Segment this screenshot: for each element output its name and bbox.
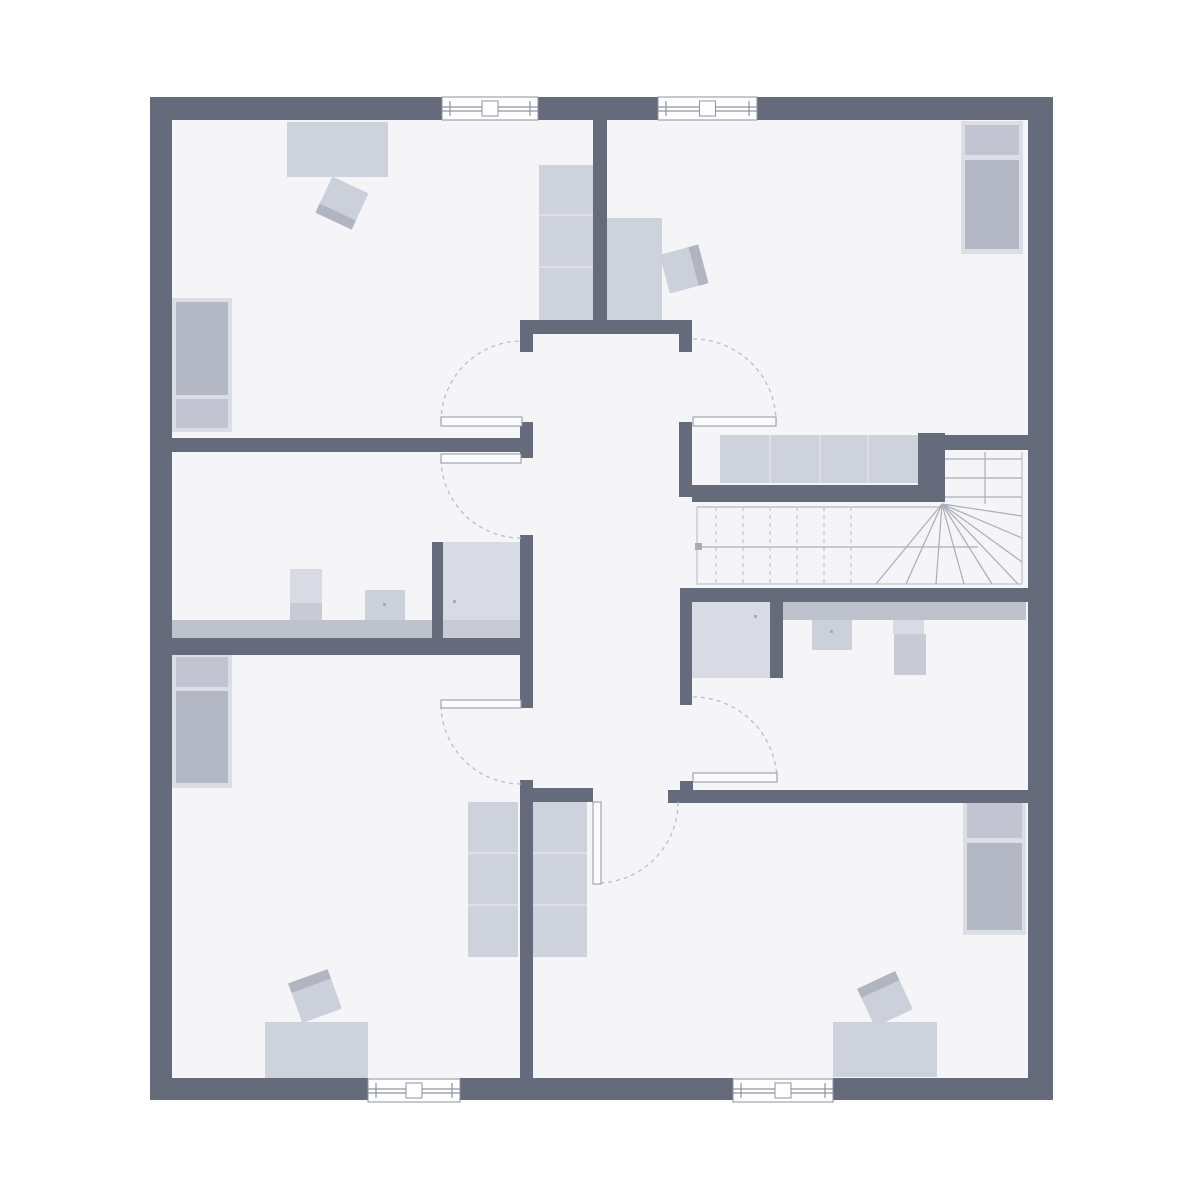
fixture-mark — [830, 630, 833, 633]
desk — [287, 122, 388, 177]
wall — [460, 1078, 733, 1100]
sink — [812, 620, 852, 650]
toilet-bowl — [290, 603, 322, 620]
bed-pillow — [176, 657, 228, 687]
wardrobe — [539, 165, 593, 320]
wall — [680, 588, 1028, 602]
window-casement — [406, 1083, 422, 1098]
wardrobe-body — [720, 435, 918, 483]
toilet-tank — [893, 620, 924, 634]
floor-plan — [0, 0, 1200, 1200]
shower — [692, 602, 770, 678]
bed — [172, 653, 232, 788]
wall — [520, 535, 533, 708]
wall — [150, 1078, 368, 1100]
door-leaf — [441, 700, 521, 708]
window-casement — [482, 101, 498, 116]
wall — [668, 790, 1028, 803]
wall — [520, 422, 533, 458]
countertop — [783, 602, 1026, 620]
window — [368, 1079, 460, 1102]
wall — [150, 97, 442, 120]
door-leaf — [441, 417, 522, 426]
wardrobe — [533, 802, 587, 957]
wardrobe-body — [533, 802, 587, 957]
window-casement — [700, 101, 716, 116]
wall — [170, 638, 533, 655]
bed — [961, 121, 1023, 254]
fixture-mark — [383, 603, 386, 606]
floor-plan-page — [0, 0, 1200, 1200]
wall — [1028, 97, 1053, 1100]
bed — [963, 798, 1026, 935]
window — [733, 1079, 833, 1102]
shower-edge — [443, 620, 520, 638]
bed-pillow — [965, 125, 1019, 155]
wall — [533, 788, 593, 802]
wardrobe-body — [539, 165, 593, 320]
wall — [593, 120, 607, 320]
wall — [757, 97, 1053, 120]
wardrobe — [720, 435, 918, 483]
wall — [679, 422, 692, 497]
bed-mattress — [176, 302, 228, 395]
wall — [679, 334, 692, 352]
wall — [692, 485, 945, 502]
wall — [170, 438, 533, 452]
countertop — [170, 620, 432, 638]
fixture-mark — [754, 615, 757, 618]
desk — [607, 218, 662, 320]
fixture-mark — [453, 600, 456, 603]
stair-walk-dot — [695, 543, 702, 550]
wall — [925, 435, 1028, 450]
bed-mattress — [967, 843, 1022, 930]
wall — [432, 542, 443, 640]
bed-pillow — [967, 802, 1022, 838]
wall — [680, 781, 693, 792]
wall — [680, 602, 692, 705]
wall — [520, 320, 692, 334]
bed-mattress — [176, 691, 228, 783]
door-leaf — [693, 773, 777, 782]
window — [442, 97, 538, 120]
wardrobe-body — [468, 802, 518, 957]
wall — [833, 1078, 1053, 1100]
wall — [150, 97, 172, 1100]
door-leaf — [441, 454, 521, 463]
wall — [520, 780, 533, 1078]
wardrobe — [468, 802, 518, 957]
wall — [770, 602, 783, 678]
window-casement — [775, 1083, 791, 1098]
window — [658, 97, 757, 120]
door-leaf — [693, 417, 776, 426]
toilet-tank — [290, 569, 322, 603]
bed-pillow — [176, 399, 228, 428]
toilet-bowl — [894, 634, 926, 675]
bed — [172, 298, 232, 432]
desk — [833, 1022, 937, 1077]
bed-mattress — [965, 160, 1019, 249]
wall — [520, 334, 533, 352]
door-leaf — [593, 802, 601, 884]
desk — [265, 1022, 368, 1078]
wall — [538, 97, 658, 120]
